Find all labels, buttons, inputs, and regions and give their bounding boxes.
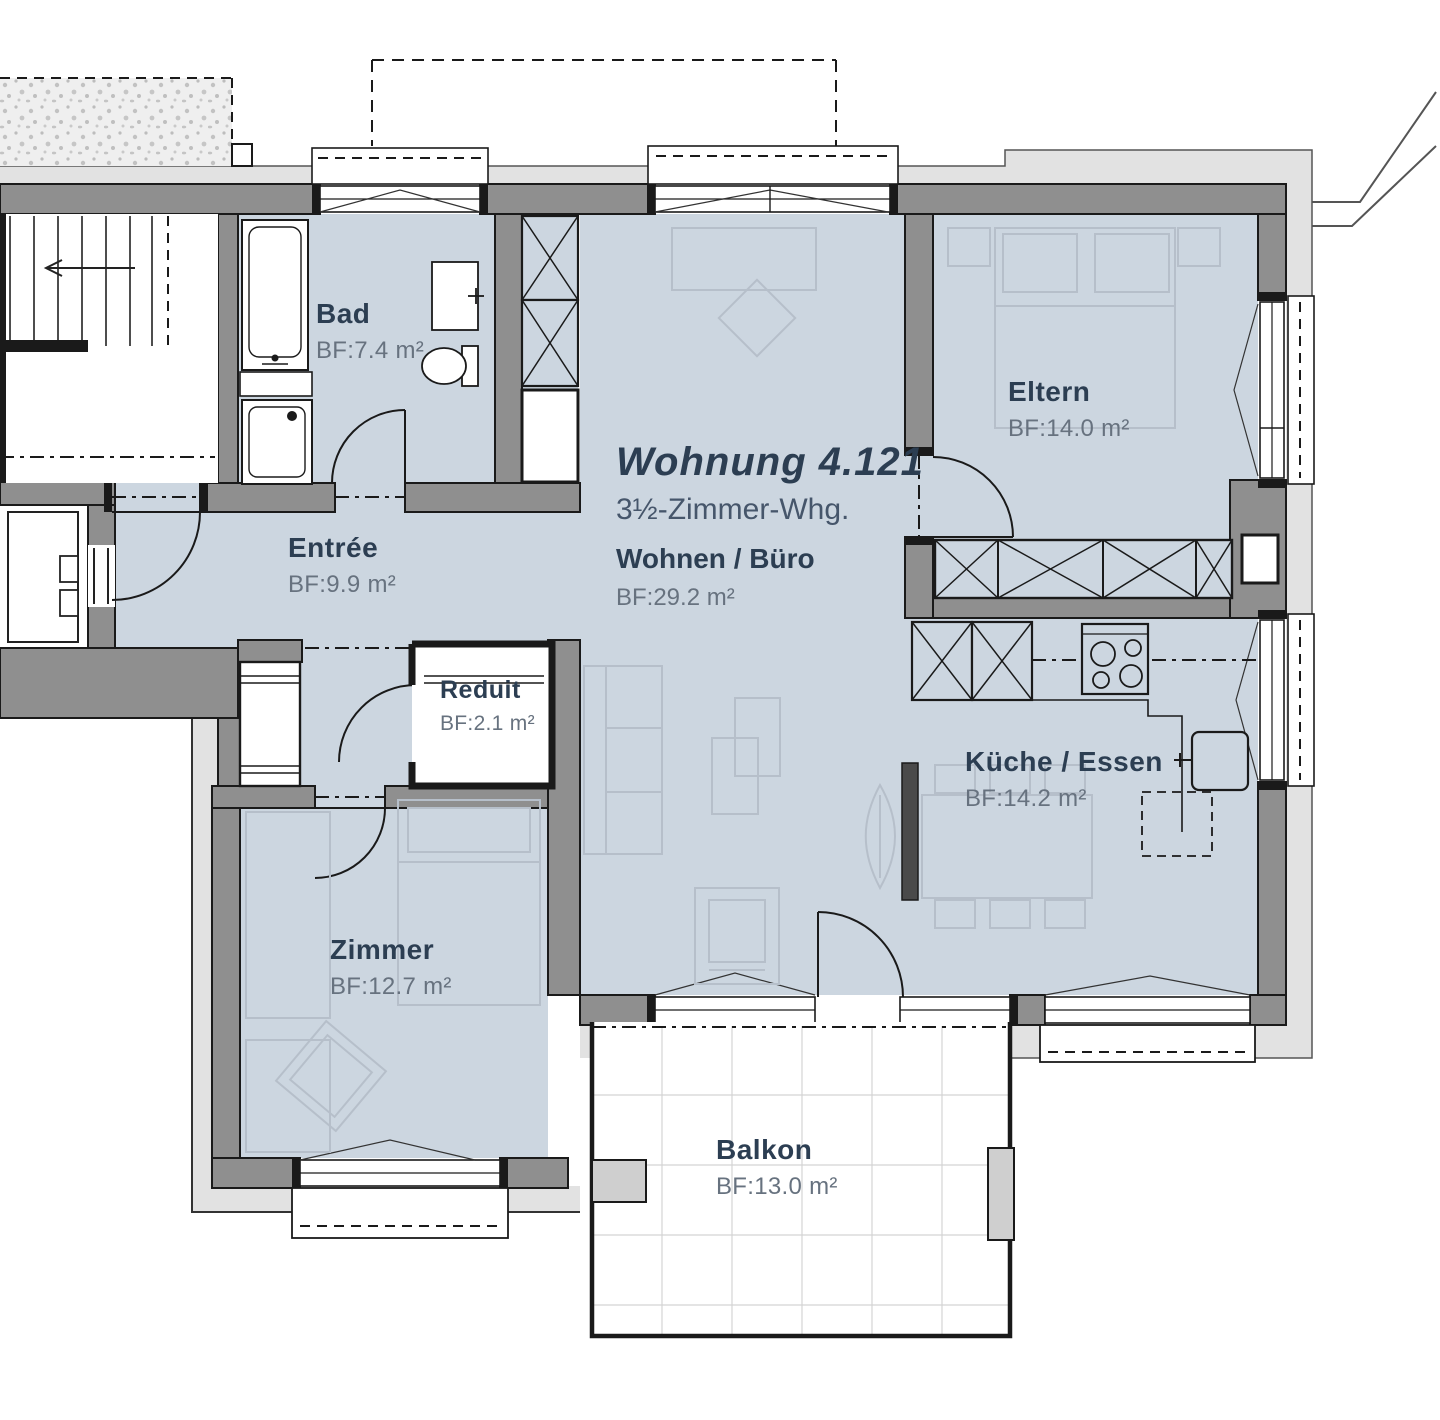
floor-plan-drawing bbox=[0, 0, 1440, 1420]
stove bbox=[1082, 624, 1148, 694]
wall-zimmer-bottom-a bbox=[212, 1158, 300, 1188]
wall-shaft-bottom bbox=[0, 648, 238, 718]
apartment-title: Wohnung 4.121 bbox=[616, 440, 924, 485]
eltern-wardrobe-row bbox=[935, 540, 1232, 598]
facade-step-top-right bbox=[1005, 150, 1312, 168]
elevator-door-opening bbox=[88, 545, 115, 607]
room-label-entree: Entrée BF:9.9 m² bbox=[288, 532, 396, 599]
toilet bbox=[422, 346, 478, 386]
room-area-wohnen: BF:29.2 m² bbox=[616, 584, 924, 612]
wall-bottom-right bbox=[1250, 995, 1286, 1025]
apartment-subtitle: 3½-Zimmer-Whg. bbox=[616, 493, 924, 527]
room-label-reduit: Reduit BF:2.1 m² bbox=[440, 676, 535, 736]
wall-top-3 bbox=[890, 184, 1286, 214]
wall-right-a bbox=[1258, 214, 1286, 300]
wall-entree-south bbox=[238, 640, 302, 662]
adjacent-building-hatch bbox=[0, 78, 232, 166]
wohnen-window bbox=[648, 146, 898, 212]
room-label-wohnen: Wohnen / Büro bbox=[616, 543, 924, 575]
washbasin-counter bbox=[240, 372, 312, 396]
elevator-door-panel bbox=[60, 590, 78, 616]
elevator-counterweight bbox=[60, 556, 78, 582]
apartment-title-block: Wohnung 4.121 3½-Zimmer-Whg. Wohnen / Bü… bbox=[616, 440, 924, 612]
wall-entry-b bbox=[200, 483, 335, 512]
wall-wohnen-eltern-a bbox=[905, 214, 933, 455]
niche-wardrobe-column bbox=[522, 216, 578, 482]
entree-cabinet bbox=[240, 662, 300, 786]
floor-plan: Wohnung 4.121 3½-Zimmer-Whg. Wohnen / Bü… bbox=[0, 0, 1440, 1420]
kitchen-tall-cabinets bbox=[912, 622, 1032, 700]
room-label-bad: Bad BF:7.4 m² bbox=[316, 298, 424, 365]
duct-shaft bbox=[1242, 535, 1278, 583]
roof-outline bbox=[1312, 92, 1436, 226]
upper-floor-projection bbox=[372, 60, 836, 146]
wall-top-1 bbox=[0, 184, 320, 214]
wall-entry-c bbox=[405, 483, 580, 512]
balcony-pier-left bbox=[592, 1160, 646, 1202]
wall-stair-bad bbox=[218, 214, 238, 483]
wall-bad-right bbox=[495, 214, 522, 483]
balcony-pier-right bbox=[988, 1148, 1014, 1240]
wall-zimmer-left bbox=[212, 808, 240, 1158]
washbasin bbox=[432, 262, 484, 330]
wall-zimmer-bottom-b bbox=[500, 1158, 568, 1188]
partition-wall bbox=[902, 763, 918, 900]
bad-window bbox=[312, 148, 488, 212]
room-label-zimmer: Zimmer BF:12.7 m² bbox=[330, 934, 452, 1001]
wall-zimmer-top-a bbox=[212, 786, 315, 808]
wall-right-b bbox=[1258, 782, 1286, 995]
wall-top-2 bbox=[480, 184, 655, 214]
stair-landing-edge bbox=[0, 340, 88, 352]
facade-pier bbox=[232, 144, 252, 166]
stairwell bbox=[0, 214, 218, 483]
room-label-kueche: Küche / Essen BF:14.2 m² bbox=[965, 746, 1163, 813]
wall-jog-vertical bbox=[218, 718, 240, 788]
wall-bottom-left bbox=[580, 995, 655, 1025]
wall-shaft-top bbox=[0, 480, 115, 505]
room-label-eltern: Eltern BF:14.0 m² bbox=[1008, 376, 1130, 443]
room-label-balkon: Balkon BF:13.0 m² bbox=[716, 1134, 838, 1201]
niche bbox=[522, 390, 578, 482]
